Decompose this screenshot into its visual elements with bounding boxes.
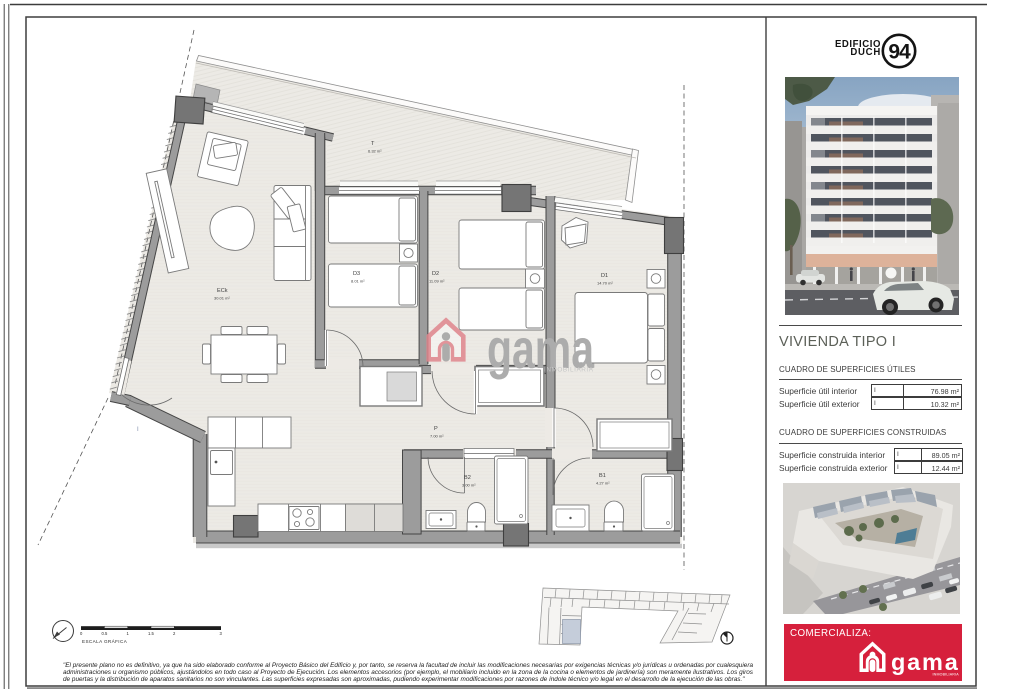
svg-text:P: P xyxy=(434,426,438,432)
svg-text:1.5: 1.5 xyxy=(148,631,154,636)
svg-text:94: 94 xyxy=(888,41,911,64)
svg-text:B2: B2 xyxy=(464,475,471,481)
svg-text:7.00 m²: 7.00 m² xyxy=(430,434,444,439)
svg-text:INMOBILIARIA: INMOBILIARIA xyxy=(933,673,960,677)
svg-text:T: T xyxy=(371,141,375,147)
svg-text:gama: gama xyxy=(891,649,960,675)
svg-text:3.00 m²: 3.00 m² xyxy=(462,483,476,488)
svg-text:D1: D1 xyxy=(601,273,608,279)
svg-text:ECk: ECk xyxy=(217,288,228,294)
svg-text:3: 3 xyxy=(220,631,223,636)
svg-text:11.09 m²: 11.09 m² xyxy=(429,279,445,284)
svg-text:2: 2 xyxy=(173,631,176,636)
svg-text:0.5: 0.5 xyxy=(102,631,108,636)
svg-text:B1: B1 xyxy=(599,473,606,479)
svg-text:30.01 m²: 30.01 m² xyxy=(214,296,230,301)
svg-text:I: I xyxy=(137,427,139,433)
svg-text:D2: D2 xyxy=(432,271,439,277)
svg-text:4.27 m²: 4.27 m² xyxy=(596,481,610,486)
svg-text:INMOBILIARIA: INMOBILIARIA xyxy=(544,367,594,374)
svg-text:1: 1 xyxy=(127,631,130,636)
svg-text:8.01 m²: 8.01 m² xyxy=(351,279,365,284)
svg-text:14.70 m²: 14.70 m² xyxy=(597,281,613,286)
svg-text:ESCALA GRÁFICA: ESCALA GRÁFICA xyxy=(82,638,128,644)
svg-text:D3: D3 xyxy=(353,271,360,277)
svg-text:0: 0 xyxy=(80,631,83,636)
svg-text:6.32 m²: 6.32 m² xyxy=(368,149,382,154)
